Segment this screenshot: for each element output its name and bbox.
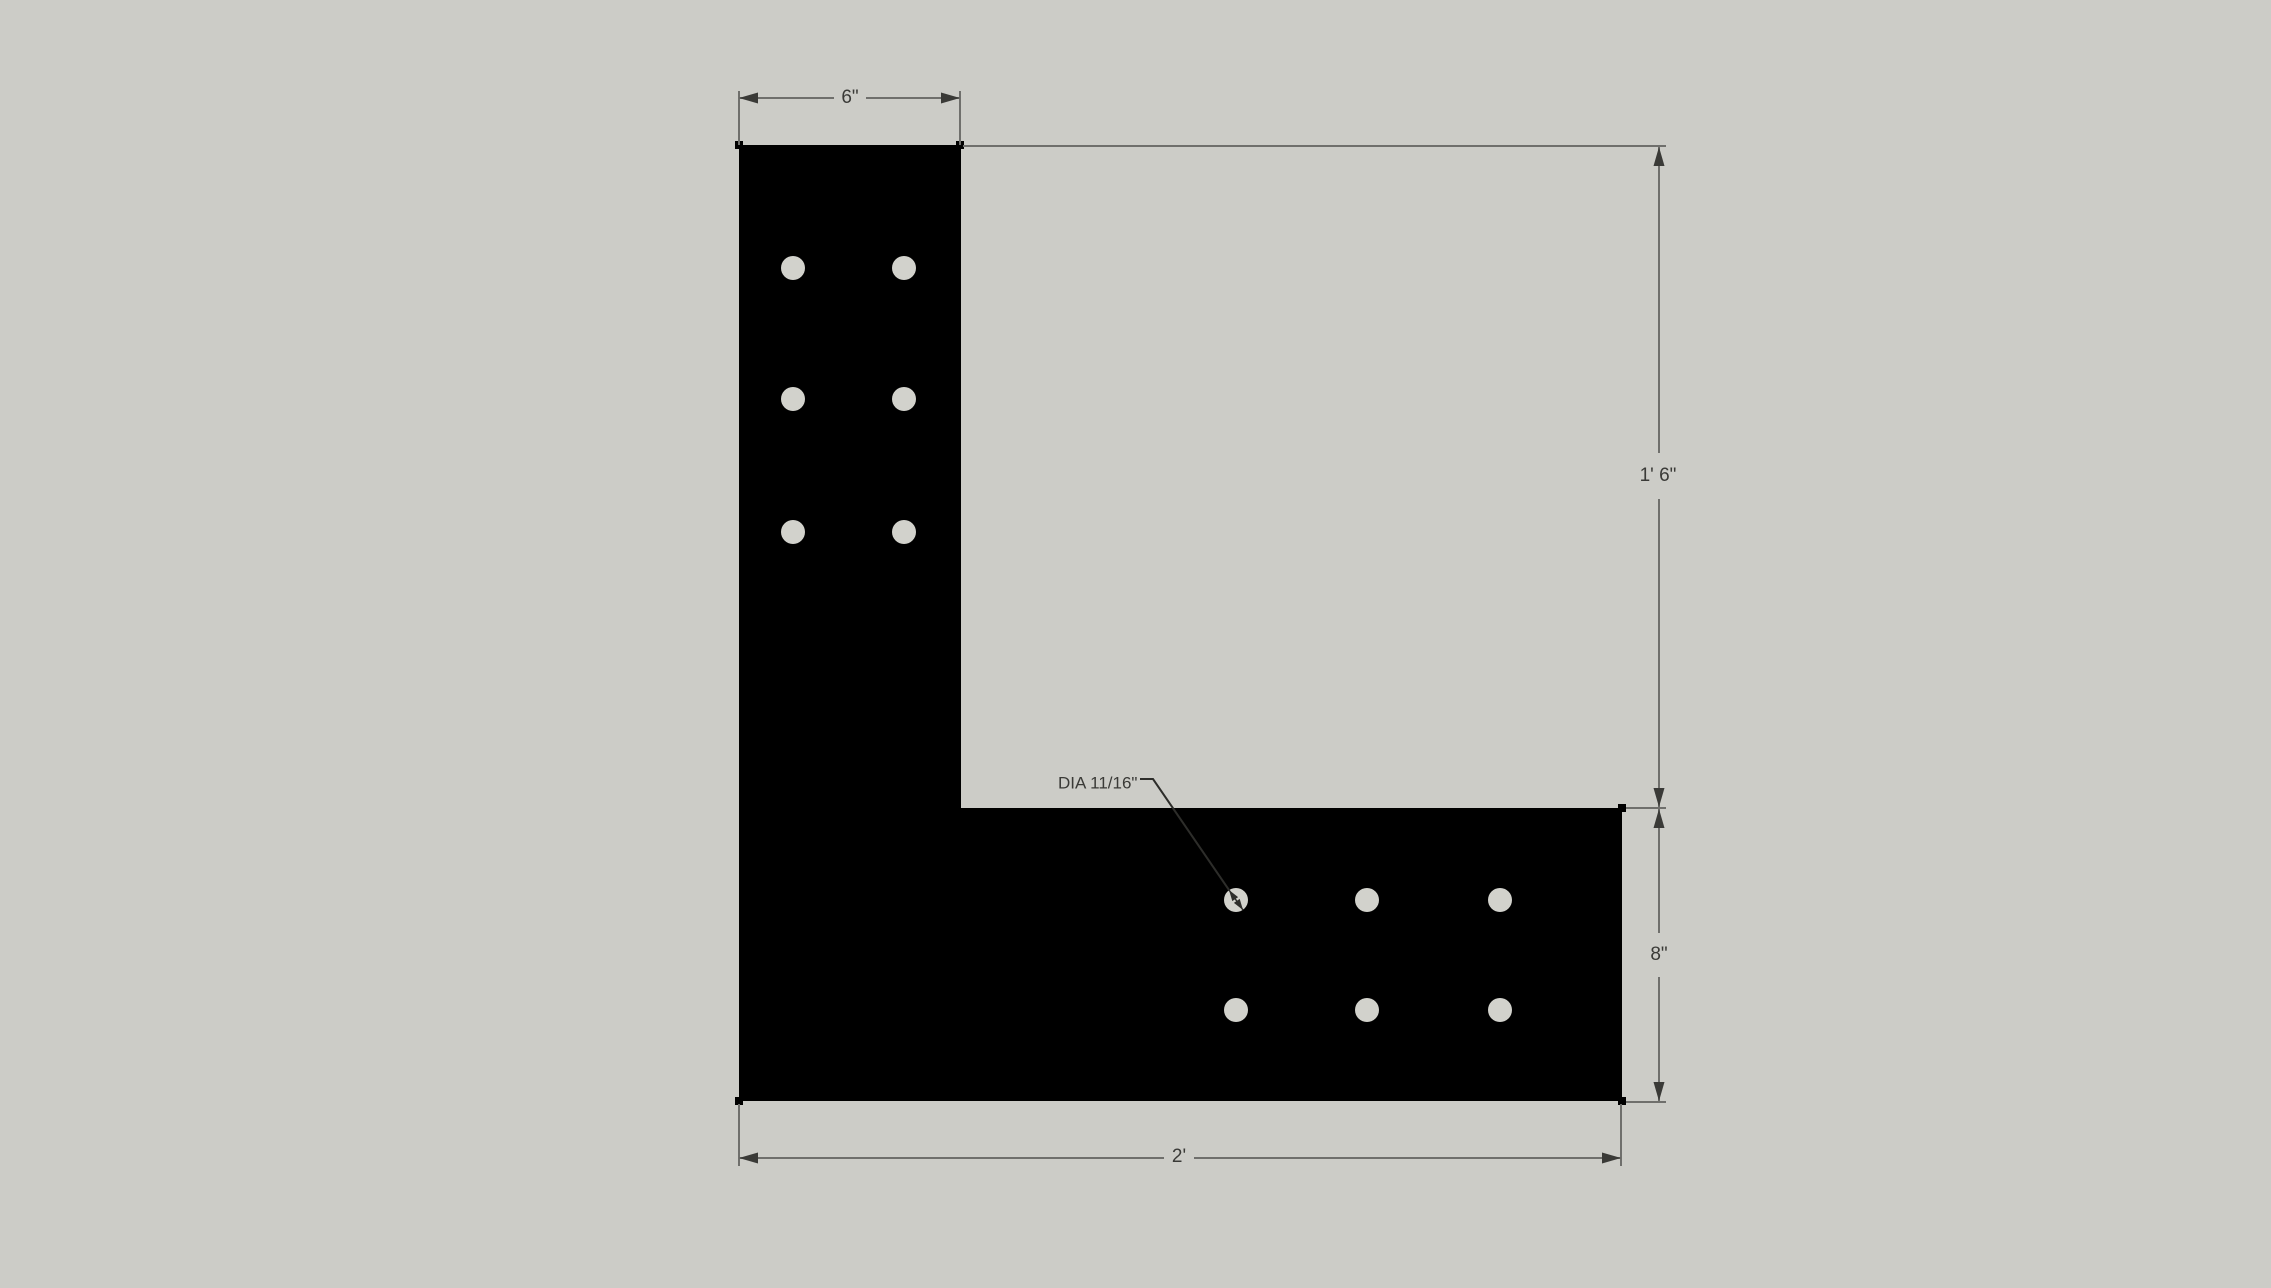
bracket-shape[interactable] (739, 145, 1622, 1101)
dim-arrow-up-icon (1654, 809, 1665, 828)
dim-arrow-right-icon (1602, 1153, 1621, 1164)
bolt-hole (1488, 998, 1512, 1022)
bolt-hole (1355, 888, 1379, 912)
dim-arrow-left-icon (739, 1153, 758, 1164)
dim-right-height[interactable]: 1' 6" (963, 146, 1676, 807)
dim-bottom-width-label[interactable]: 2' (1172, 1146, 1186, 1167)
dim-arrow-down-icon (1654, 1082, 1665, 1101)
dim-arrow-down-icon (1654, 788, 1665, 807)
bolt-hole (781, 256, 805, 280)
dim-top-width-label[interactable]: 6" (841, 87, 858, 108)
drawing-canvas[interactable]: 6" 1' 6" 8" 2' (0, 0, 2271, 1288)
dim-bottom-width[interactable]: 2' (739, 1104, 1621, 1167)
bolt-hole (1355, 998, 1379, 1022)
dim-anchor-marker (735, 1097, 743, 1105)
dim-anchor-marker (1618, 1097, 1626, 1105)
bolt-hole (1224, 998, 1248, 1022)
dim-arrow-up-icon (1654, 147, 1665, 166)
bolt-hole (892, 387, 916, 411)
bolt-hole (892, 256, 916, 280)
dim-top-width[interactable]: 6" (739, 87, 960, 145)
dim-right-height-label[interactable]: 1' 6" (1640, 465, 1677, 486)
dim-arm-height[interactable]: 8" (1626, 808, 1668, 1102)
bolt-hole (781, 520, 805, 544)
bolt-hole (781, 387, 805, 411)
dim-anchor-marker (1618, 804, 1626, 812)
hole-callout-label[interactable]: DIA 11/16" (1058, 773, 1137, 792)
bolt-hole (1488, 888, 1512, 912)
bolt-hole (892, 520, 916, 544)
dim-arrow-right-icon (941, 93, 960, 104)
dim-arm-height-label[interactable]: 8" (1650, 944, 1667, 965)
cad-drawing: 6" 1' 6" 8" 2' (0, 0, 2271, 1288)
dim-arrow-left-icon (739, 93, 758, 104)
